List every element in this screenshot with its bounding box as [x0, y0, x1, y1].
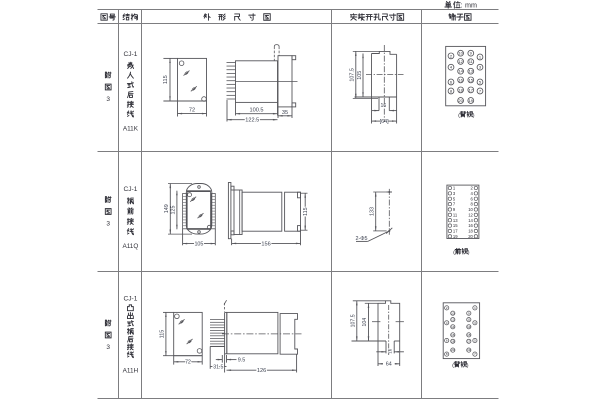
svg-text:3: 3 [106, 96, 110, 103]
svg-text:14: 14 [458, 69, 463, 74]
svg-text:72: 72 [185, 360, 191, 366]
svg-text:mm: mm [465, 1, 477, 10]
svg-text:13: 13 [467, 325, 471, 329]
svg-text:15: 15 [469, 77, 474, 82]
svg-text:115: 115 [303, 207, 309, 216]
svg-text:11: 11 [467, 318, 470, 322]
svg-text:17: 17 [469, 87, 474, 92]
svg-text:105: 105 [357, 71, 363, 80]
svg-text:16: 16 [451, 333, 455, 337]
svg-text:156: 156 [261, 241, 270, 247]
svg-text:104: 104 [362, 318, 368, 327]
svg-text:107.5: 107.5 [349, 68, 355, 82]
svg-text:16: 16 [381, 103, 387, 109]
svg-text:2-Φ5: 2-Φ5 [355, 236, 367, 242]
svg-text:115: 115 [163, 75, 169, 84]
svg-text:(: ( [453, 250, 455, 256]
svg-text:A11H: A11H [123, 367, 139, 374]
svg-text:12: 12 [451, 318, 455, 322]
svg-text:16: 16 [458, 77, 463, 82]
svg-text:20: 20 [458, 98, 463, 103]
svg-text:122.5: 122.5 [245, 118, 259, 124]
svg-text:19: 19 [467, 348, 471, 352]
svg-text:10: 10 [468, 207, 473, 212]
svg-text:14: 14 [451, 325, 455, 329]
svg-text:115: 115 [159, 330, 165, 339]
svg-text:CJ-1: CJ-1 [123, 51, 137, 58]
svg-text:18: 18 [451, 339, 455, 343]
svg-text:12: 12 [468, 212, 473, 217]
svg-text:14: 14 [468, 218, 473, 223]
svg-text:15: 15 [453, 223, 458, 228]
svg-text:A11Q: A11Q [122, 243, 138, 250]
svg-text:149: 149 [164, 204, 170, 213]
svg-text:): ) [467, 363, 469, 369]
svg-text:17: 17 [453, 229, 458, 234]
svg-text:20: 20 [451, 348, 455, 352]
svg-text:133: 133 [369, 207, 375, 216]
svg-text:CJ-1: CJ-1 [123, 296, 137, 303]
svg-text:(: ( [458, 113, 460, 119]
svg-text:19: 19 [453, 234, 458, 239]
svg-text:31.5: 31.5 [213, 364, 223, 370]
svg-text:19: 19 [469, 98, 474, 103]
svg-text:126: 126 [257, 368, 266, 374]
svg-text:11: 11 [453, 212, 458, 217]
svg-text:13: 13 [469, 69, 474, 74]
svg-text:15: 15 [467, 333, 471, 337]
svg-text:9.5: 9.5 [238, 358, 246, 364]
svg-text:16: 16 [468, 223, 473, 228]
svg-text:10: 10 [458, 51, 463, 56]
svg-text:(: ( [452, 363, 454, 369]
svg-text:105: 105 [194, 242, 203, 248]
svg-text:3: 3 [106, 344, 110, 351]
svg-text:18: 18 [468, 229, 473, 234]
svg-text:20: 20 [468, 234, 473, 239]
svg-text:CJ-1: CJ-1 [123, 186, 137, 193]
svg-text:): ) [473, 113, 475, 119]
svg-text:3: 3 [106, 221, 110, 228]
svg-text:100.5: 100.5 [250, 108, 264, 114]
svg-text:12: 12 [458, 59, 463, 64]
svg-text::: : [461, 1, 463, 10]
svg-text:35: 35 [282, 110, 288, 116]
svg-text:64: 64 [386, 362, 392, 368]
svg-text:13: 13 [453, 218, 458, 223]
svg-text:18: 18 [458, 87, 463, 92]
svg-text:A11K: A11K [123, 126, 139, 133]
svg-text:): ) [468, 250, 470, 256]
svg-text:107.5: 107.5 [350, 314, 356, 327]
svg-text:125: 125 [171, 206, 177, 215]
svg-text:[64]: [64] [380, 119, 389, 125]
svg-text:17: 17 [467, 339, 471, 343]
svg-text:10: 10 [451, 311, 455, 315]
svg-text:72: 72 [189, 107, 195, 113]
